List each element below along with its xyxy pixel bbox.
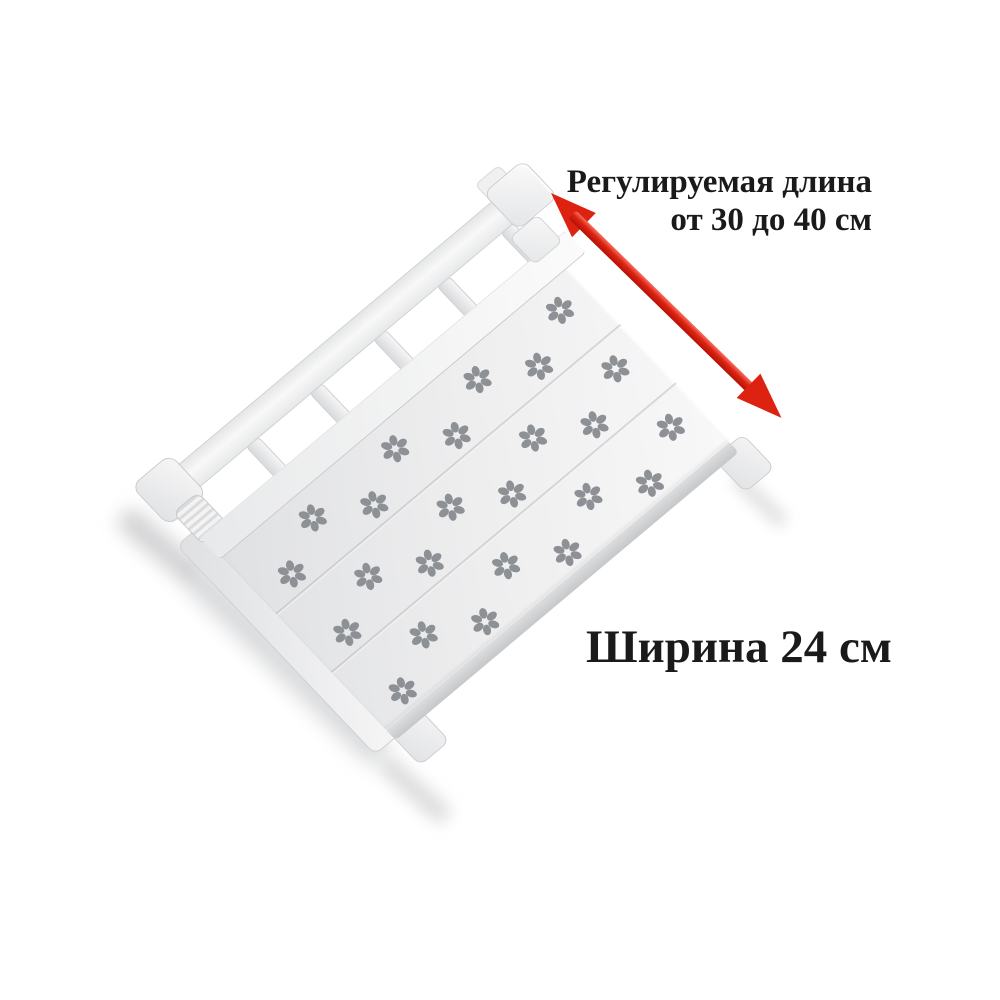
flower-perforation-icon: [594, 349, 637, 389]
flower-perforation: [456, 359, 499, 399]
flower-perforation-icon: [374, 429, 417, 469]
flower-perforation-icon: [485, 546, 528, 586]
flower-perforation: [539, 290, 582, 330]
flower-perforation-icon: [456, 359, 499, 399]
flower-perforation: [485, 546, 528, 586]
flower-perforation-icon: [291, 498, 334, 538]
flower-perforation: [402, 615, 445, 655]
bottom-foot-shadow: [377, 754, 454, 826]
length-annotation-line2: от 30 до 40 см: [512, 201, 872, 239]
width-annotation: Ширина 24 см: [586, 620, 892, 674]
flower-perforation: [649, 407, 692, 447]
flower-perforation-icon: [402, 615, 445, 655]
flower-perforation: [291, 498, 334, 538]
flower-perforation-icon: [567, 476, 610, 516]
length-annotation-line1: Регулируемая длина: [512, 163, 872, 201]
product-photo-canvas: Регулируемая длина от 30 до 40 см Ширина…: [0, 0, 1000, 1000]
flower-perforation: [374, 429, 417, 469]
flower-perforation-icon: [649, 407, 692, 447]
length-annotation: Регулируемая длина от 30 до 40 см: [512, 163, 872, 239]
flower-perforation: [567, 476, 610, 516]
flower-perforation-icon: [347, 556, 390, 596]
flower-perforation-icon: [429, 487, 472, 527]
flower-perforation: [347, 556, 390, 596]
flower-perforation: [594, 349, 637, 389]
flower-perforation: [429, 487, 472, 527]
flower-perforation-icon: [539, 290, 582, 330]
flower-perforation-icon: [512, 418, 555, 458]
flower-perforation: [512, 418, 555, 458]
